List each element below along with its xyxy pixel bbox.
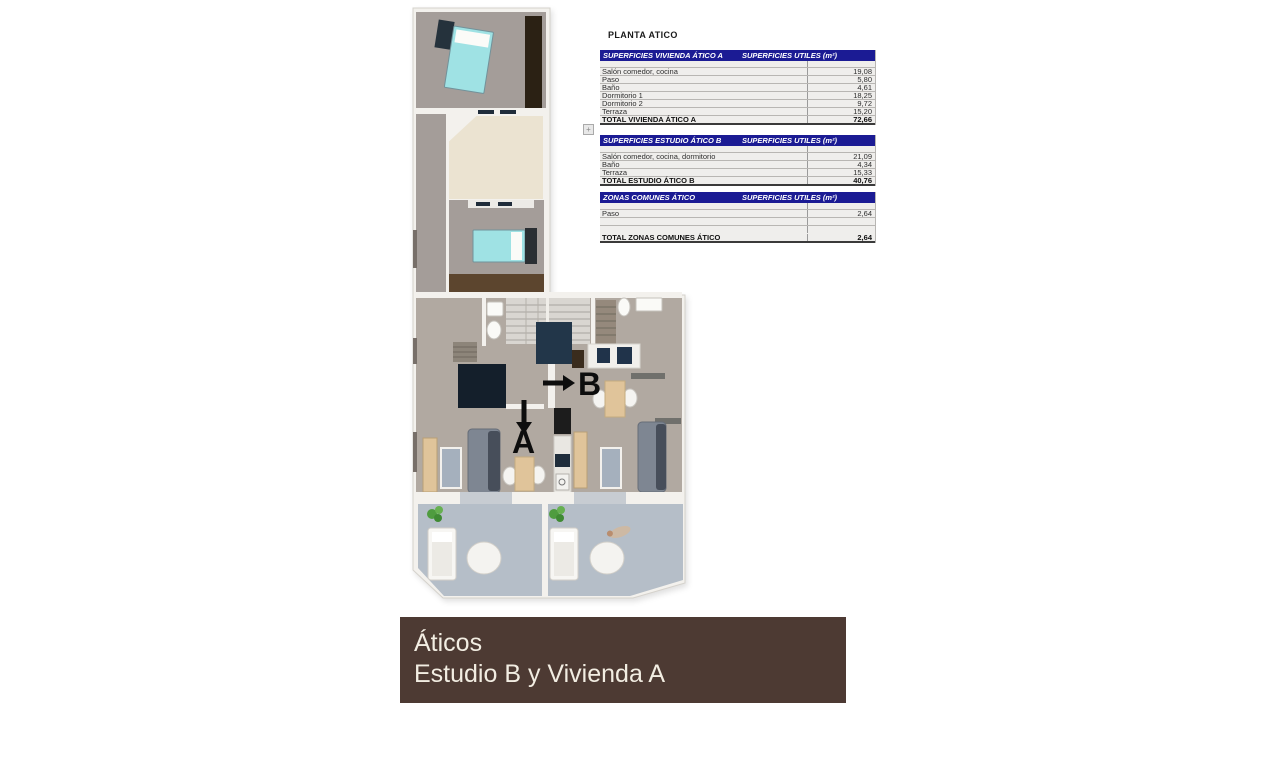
round-table (467, 542, 501, 574)
window-sill (498, 202, 512, 206)
hallway-floor (416, 114, 446, 295)
door-threshold (460, 492, 512, 504)
wall-segment (416, 492, 682, 504)
table-row: Salón comedor, cocina 19,08 (600, 68, 875, 76)
table-row: Baño 4,34 (600, 161, 875, 169)
table-zonas-comunes: ZONAS COMUNES ÁTICO SUPERFICIES UTILES (… (600, 192, 876, 243)
kitchen-a (554, 408, 571, 494)
cabinet-tan-left (423, 438, 437, 492)
wall-segment (446, 114, 449, 295)
banner-line1: Áticos (414, 628, 846, 659)
wall-segment (416, 292, 682, 298)
window-segment (413, 338, 417, 364)
lounger (550, 528, 578, 580)
table-row: Paso 5,80 (600, 76, 875, 84)
paste-options-icon: + (583, 124, 594, 135)
window-sill (476, 202, 490, 206)
table-total-row: TOTAL ESTUDIO ÁTICO B 40,76 (600, 177, 875, 186)
table-header: SUPERFICIES ESTUDIO ÁTICO B SUPERFICIES … (600, 135, 875, 146)
table-estudio-b: SUPERFICIES ESTUDIO ÁTICO B SUPERFICIES … (600, 135, 876, 186)
banner-line2: Estudio B y Vivienda A (414, 659, 846, 690)
table-header-units: SUPERFICIES UTILES (m²) (742, 192, 837, 203)
lounger (428, 528, 456, 580)
shelf-b-top (631, 373, 665, 379)
plan-title: PLANTA ATICO (608, 30, 678, 40)
unit-b-label: B (578, 366, 601, 402)
window-segment (413, 432, 417, 472)
table-vivienda-a: SUPERFICIES VIVIENDA ÁTICO A SUPERFICIES… (600, 50, 876, 125)
stair-landing (536, 322, 572, 364)
door-threshold (574, 492, 626, 504)
unit-a-label: A (512, 424, 535, 460)
table-total-row: TOTAL ZONAS COMUNES ÁTICO 2,64 (600, 234, 875, 243)
table-row: Dormitorio 2 9,72 (600, 100, 875, 108)
wardrobe (525, 16, 542, 112)
table-header: ZONAS COMUNES ÁTICO SUPERFICIES UTILES (… (600, 192, 875, 203)
table-row (600, 218, 875, 226)
window-radiator-b (601, 448, 621, 488)
table-header-title: SUPERFICIES VIVIENDA ÁTICO A (603, 50, 723, 61)
sofa-b (638, 422, 666, 492)
window-radiator (441, 448, 461, 488)
rug-navy (458, 364, 506, 408)
table-header-units: SUPERFICIES UTILES (m²) (742, 50, 837, 61)
table-header: SUPERFICIES VIVIENDA ÁTICO A SUPERFICIES… (600, 50, 875, 61)
table-header-units: SUPERFICIES UTILES (m²) (742, 135, 837, 146)
table-spacer-row (600, 203, 875, 210)
bed-dormitorio2 (473, 228, 537, 264)
sofa-a (468, 429, 500, 493)
title-banner: Áticos Estudio B y Vivienda A (400, 617, 846, 703)
table-row: Paso 2,64 (600, 210, 875, 218)
table-header-title: ZONAS COMUNES ÁTICO (603, 192, 695, 203)
wall-segment (548, 364, 555, 408)
wardrobe-strip (449, 274, 544, 292)
round-table (590, 542, 624, 574)
table-header-title: SUPERFICIES ESTUDIO ÁTICO B (603, 135, 721, 146)
window-segment (413, 230, 417, 268)
terrace-a-floor (448, 115, 544, 200)
cabinet-tan-mid (574, 432, 587, 488)
table-row: Salón comedor, cocina, dormitorio 21,09 (600, 153, 875, 161)
table-total-row: TOTAL VIVIENDA ÁTICO A 72,66 (600, 116, 875, 125)
